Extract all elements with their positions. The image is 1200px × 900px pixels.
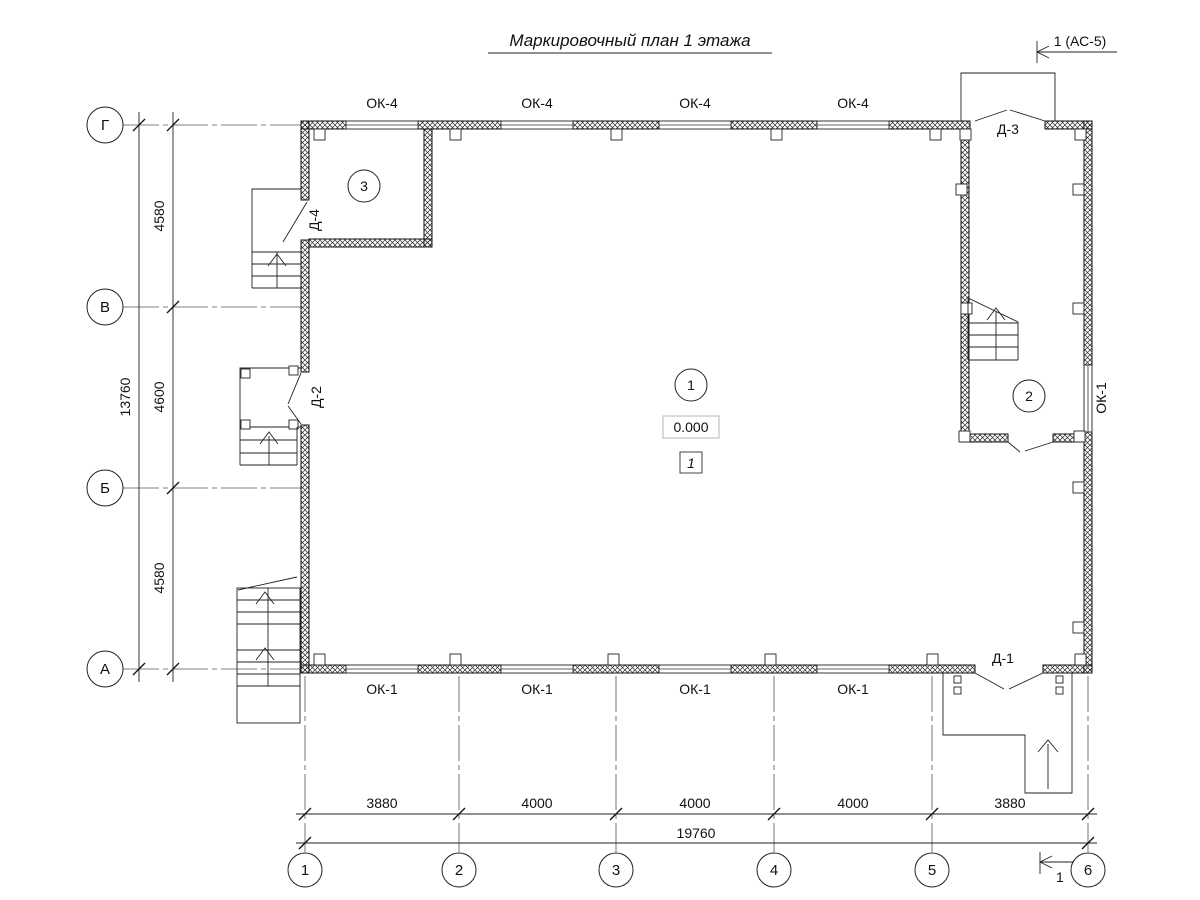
column-mark xyxy=(314,654,325,665)
left-dimensions: 13760 4580 4600 4580 xyxy=(117,112,179,682)
wall-left xyxy=(301,240,309,372)
room-number-1: 1 xyxy=(687,377,695,393)
window-ok4-1 xyxy=(346,121,418,129)
wall-top xyxy=(418,121,501,129)
wall-room2-left xyxy=(961,129,969,442)
door-swings xyxy=(283,110,1053,689)
door-label-d4: Д-4 xyxy=(306,209,322,231)
column-mark xyxy=(765,654,776,665)
wall-left xyxy=(301,121,309,200)
window-label: ОК-4 xyxy=(366,95,398,111)
wall-top xyxy=(731,121,817,129)
room-number-2: 2 xyxy=(1025,388,1033,404)
section-marker-bottom-label: 1 xyxy=(1056,869,1064,885)
axis-label-1: 1 xyxy=(301,862,309,879)
wall-left xyxy=(301,425,309,673)
door-label-d3: Д-3 xyxy=(997,121,1019,137)
jamb-post xyxy=(954,687,961,694)
window-ok1-3 xyxy=(659,665,731,673)
wall-bottom xyxy=(418,665,501,673)
wall-top xyxy=(889,121,970,129)
door-d2-swing xyxy=(288,373,301,424)
door-d3-swing xyxy=(975,110,1045,121)
jamb-post xyxy=(1056,676,1063,683)
column-mark xyxy=(450,654,461,665)
dim-left-seg-3: 4580 xyxy=(151,562,167,593)
wall-right xyxy=(1084,432,1092,673)
col-axes: 1 2 3 4 5 6 xyxy=(288,676,1105,887)
column-mark xyxy=(1075,129,1086,140)
porch-d1 xyxy=(943,673,1072,793)
bottom-dimensions: 3880 4000 4000 4000 3880 19760 xyxy=(296,795,1097,849)
window-ok4-2 xyxy=(501,121,573,129)
elevation-mark: 0.000 xyxy=(673,419,708,435)
wall-top xyxy=(573,121,659,129)
column-mark xyxy=(771,129,782,140)
axis-label-3: 3 xyxy=(612,862,620,879)
window-ok1-1 xyxy=(346,665,418,673)
column-mark xyxy=(959,431,970,442)
door-label-d1: Д-1 xyxy=(992,650,1014,666)
jamb-post xyxy=(1056,687,1063,694)
dim-left-total: 13760 xyxy=(117,377,133,416)
dim-left-seg-2: 4600 xyxy=(151,381,167,412)
window-label: ОК-4 xyxy=(679,95,711,111)
porch-post xyxy=(241,369,250,378)
dim-bottom-total: 19760 xyxy=(677,825,716,841)
window-ok4-3 xyxy=(659,121,731,129)
column-mark xyxy=(450,129,461,140)
stair-room2 xyxy=(968,298,1018,360)
dim-bottom-seg-1: 3880 xyxy=(366,795,397,811)
column-mark xyxy=(956,184,967,195)
door-d1-swing xyxy=(975,673,1043,689)
column-mark xyxy=(1073,303,1084,314)
porch-d4 xyxy=(252,189,301,288)
column-mark xyxy=(961,303,972,314)
section-marker-bottom: 1 xyxy=(1040,852,1074,885)
drawing-title: Маркировочный план 1 этажа xyxy=(488,31,772,53)
dim-bottom-seg-2: 4000 xyxy=(521,795,552,811)
window-ok1-right xyxy=(1084,365,1092,432)
windows xyxy=(346,121,1092,673)
wall-bottom xyxy=(889,665,975,673)
window-label: ОК-4 xyxy=(521,95,553,111)
wall-room3-right xyxy=(424,129,432,247)
dim-bottom-seg-5: 3880 xyxy=(994,795,1025,811)
dim-bottom-seg-3: 4000 xyxy=(679,795,710,811)
door-room2-swing xyxy=(1008,442,1053,452)
porch-post xyxy=(241,420,250,429)
window-label: ОК-1 xyxy=(521,681,553,697)
axis-label-g: Г xyxy=(101,117,109,134)
room-number-3: 3 xyxy=(360,178,368,194)
dim-bottom-seg-4: 4000 xyxy=(837,795,868,811)
door-d4-swing xyxy=(283,202,307,242)
page-title: Маркировочный план 1 этажа xyxy=(509,31,750,50)
wall-room3-bottom xyxy=(309,239,432,247)
column-mark xyxy=(1073,482,1084,493)
window-label: ОК-1 xyxy=(366,681,398,697)
column-mark xyxy=(1073,184,1084,195)
room-marks: 1 2 3 0.000 1 xyxy=(348,170,1045,473)
jamb-post xyxy=(954,676,961,683)
vestibule-outline xyxy=(961,73,1055,121)
column-mark xyxy=(927,654,938,665)
porch-outline xyxy=(943,673,1072,793)
wall-bottom xyxy=(731,665,817,673)
section-marker-top: 1 (АС-5) xyxy=(1037,33,1117,63)
porch-d2 xyxy=(240,366,301,465)
wall-bottom xyxy=(573,665,659,673)
column-mark xyxy=(608,654,619,665)
wall-right xyxy=(1084,121,1092,365)
door-label-d2: Д-2 xyxy=(308,386,324,408)
window-label: ОК-1 xyxy=(679,681,711,697)
stair-outline xyxy=(968,298,1018,360)
column-mark xyxy=(1073,622,1084,633)
window-ok1-2 xyxy=(501,665,573,673)
window-label: ОК-1 xyxy=(837,681,869,697)
porch-outline xyxy=(252,189,301,288)
stair-tower-left xyxy=(237,577,300,723)
axis-label-v: В xyxy=(100,299,110,316)
stair-outline xyxy=(237,588,300,723)
stair-up-arrow-icon xyxy=(256,592,274,604)
zone-mark: 1 xyxy=(687,455,695,471)
window-label: ОК-1 xyxy=(1093,382,1109,414)
window-ok4-4 xyxy=(817,121,889,129)
column-mark xyxy=(960,129,971,140)
porch-post xyxy=(289,366,298,375)
dim-left-seg-1: 4580 xyxy=(151,200,167,231)
column-mark xyxy=(930,129,941,140)
floor-plan-svg: Маркировочный план 1 этажа 1 (АС-5) Г В … xyxy=(0,0,1200,900)
window-ok1-4 xyxy=(817,665,889,673)
column-mark xyxy=(314,129,325,140)
axis-label-5: 5 xyxy=(928,862,936,879)
vestibule-d3 xyxy=(961,73,1055,121)
column-mark xyxy=(611,129,622,140)
axis-label-2: 2 xyxy=(455,862,463,879)
drawing-sheet: Маркировочный план 1 этажа 1 (АС-5) Г В … xyxy=(0,0,1200,900)
column-mark xyxy=(1075,654,1086,665)
axis-label-a: А xyxy=(100,661,110,678)
window-label: ОК-4 xyxy=(837,95,869,111)
axis-label-b: Б xyxy=(100,480,110,497)
axis-label-4: 4 xyxy=(770,862,778,879)
section-marker-top-label: 1 (АС-5) xyxy=(1054,33,1107,49)
axis-label-6: 6 xyxy=(1084,862,1092,879)
column-mark xyxy=(1074,431,1085,442)
